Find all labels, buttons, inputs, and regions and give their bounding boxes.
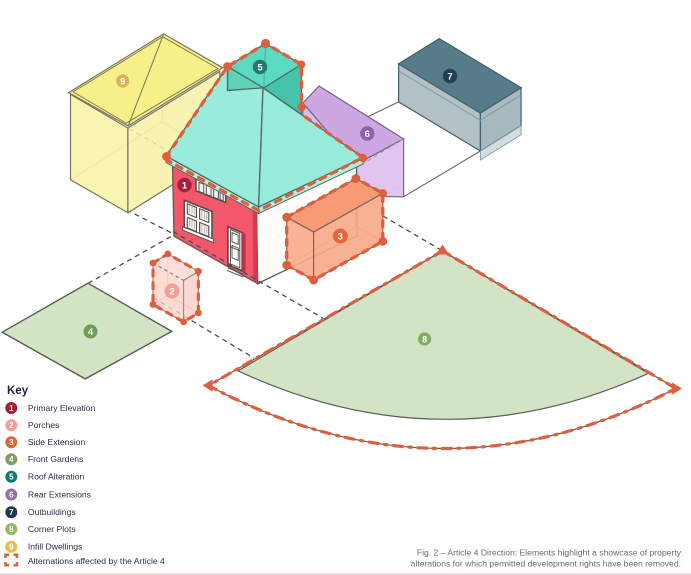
svg-text:Corner Plots: Corner Plots (28, 524, 76, 534)
svg-text:1: 1 (9, 404, 14, 413)
svg-text:9: 9 (120, 76, 125, 86)
svg-text:Fig. 2 – Article 4 Direction:: Fig. 2 – Article 4 Direction: Elements h… (417, 548, 682, 558)
svg-text:6: 6 (365, 129, 370, 140)
svg-text:Front Gardens: Front Gardens (28, 454, 83, 464)
svg-text:2: 2 (169, 286, 174, 297)
svg-text:alterations for which permitte: alterations for which permitted developm… (411, 559, 681, 569)
svg-text:Outbuildings: Outbuildings (28, 507, 76, 517)
svg-text:2: 2 (9, 421, 14, 430)
svg-text:Side Extension: Side Extension (28, 437, 86, 447)
svg-text:Infill Dwellings: Infill Dwellings (28, 542, 82, 552)
svg-text:Alternations affected by the A: Alternations affected by the Article 4 (28, 556, 165, 566)
svg-text:4: 4 (88, 327, 94, 338)
svg-text:3: 3 (9, 438, 14, 447)
svg-text:1: 1 (182, 180, 188, 191)
svg-text:Primary Elevation: Primary Elevation (28, 403, 96, 413)
svg-text:5: 5 (257, 62, 263, 73)
svg-text:8: 8 (9, 525, 14, 534)
svg-text:8: 8 (422, 334, 427, 344)
svg-text:Key: Key (7, 385, 29, 397)
svg-text:3: 3 (338, 231, 343, 242)
svg-text:5: 5 (9, 473, 14, 482)
svg-text:9: 9 (9, 543, 14, 552)
svg-text:Roof Alteration: Roof Alteration (28, 472, 85, 482)
svg-text:Porches: Porches (28, 420, 60, 430)
svg-text:6: 6 (9, 490, 14, 499)
svg-text:7: 7 (447, 71, 452, 82)
svg-text:Rear Extensions: Rear Extensions (28, 489, 91, 499)
svg-text:7: 7 (9, 508, 14, 517)
svg-text:4: 4 (9, 455, 14, 464)
